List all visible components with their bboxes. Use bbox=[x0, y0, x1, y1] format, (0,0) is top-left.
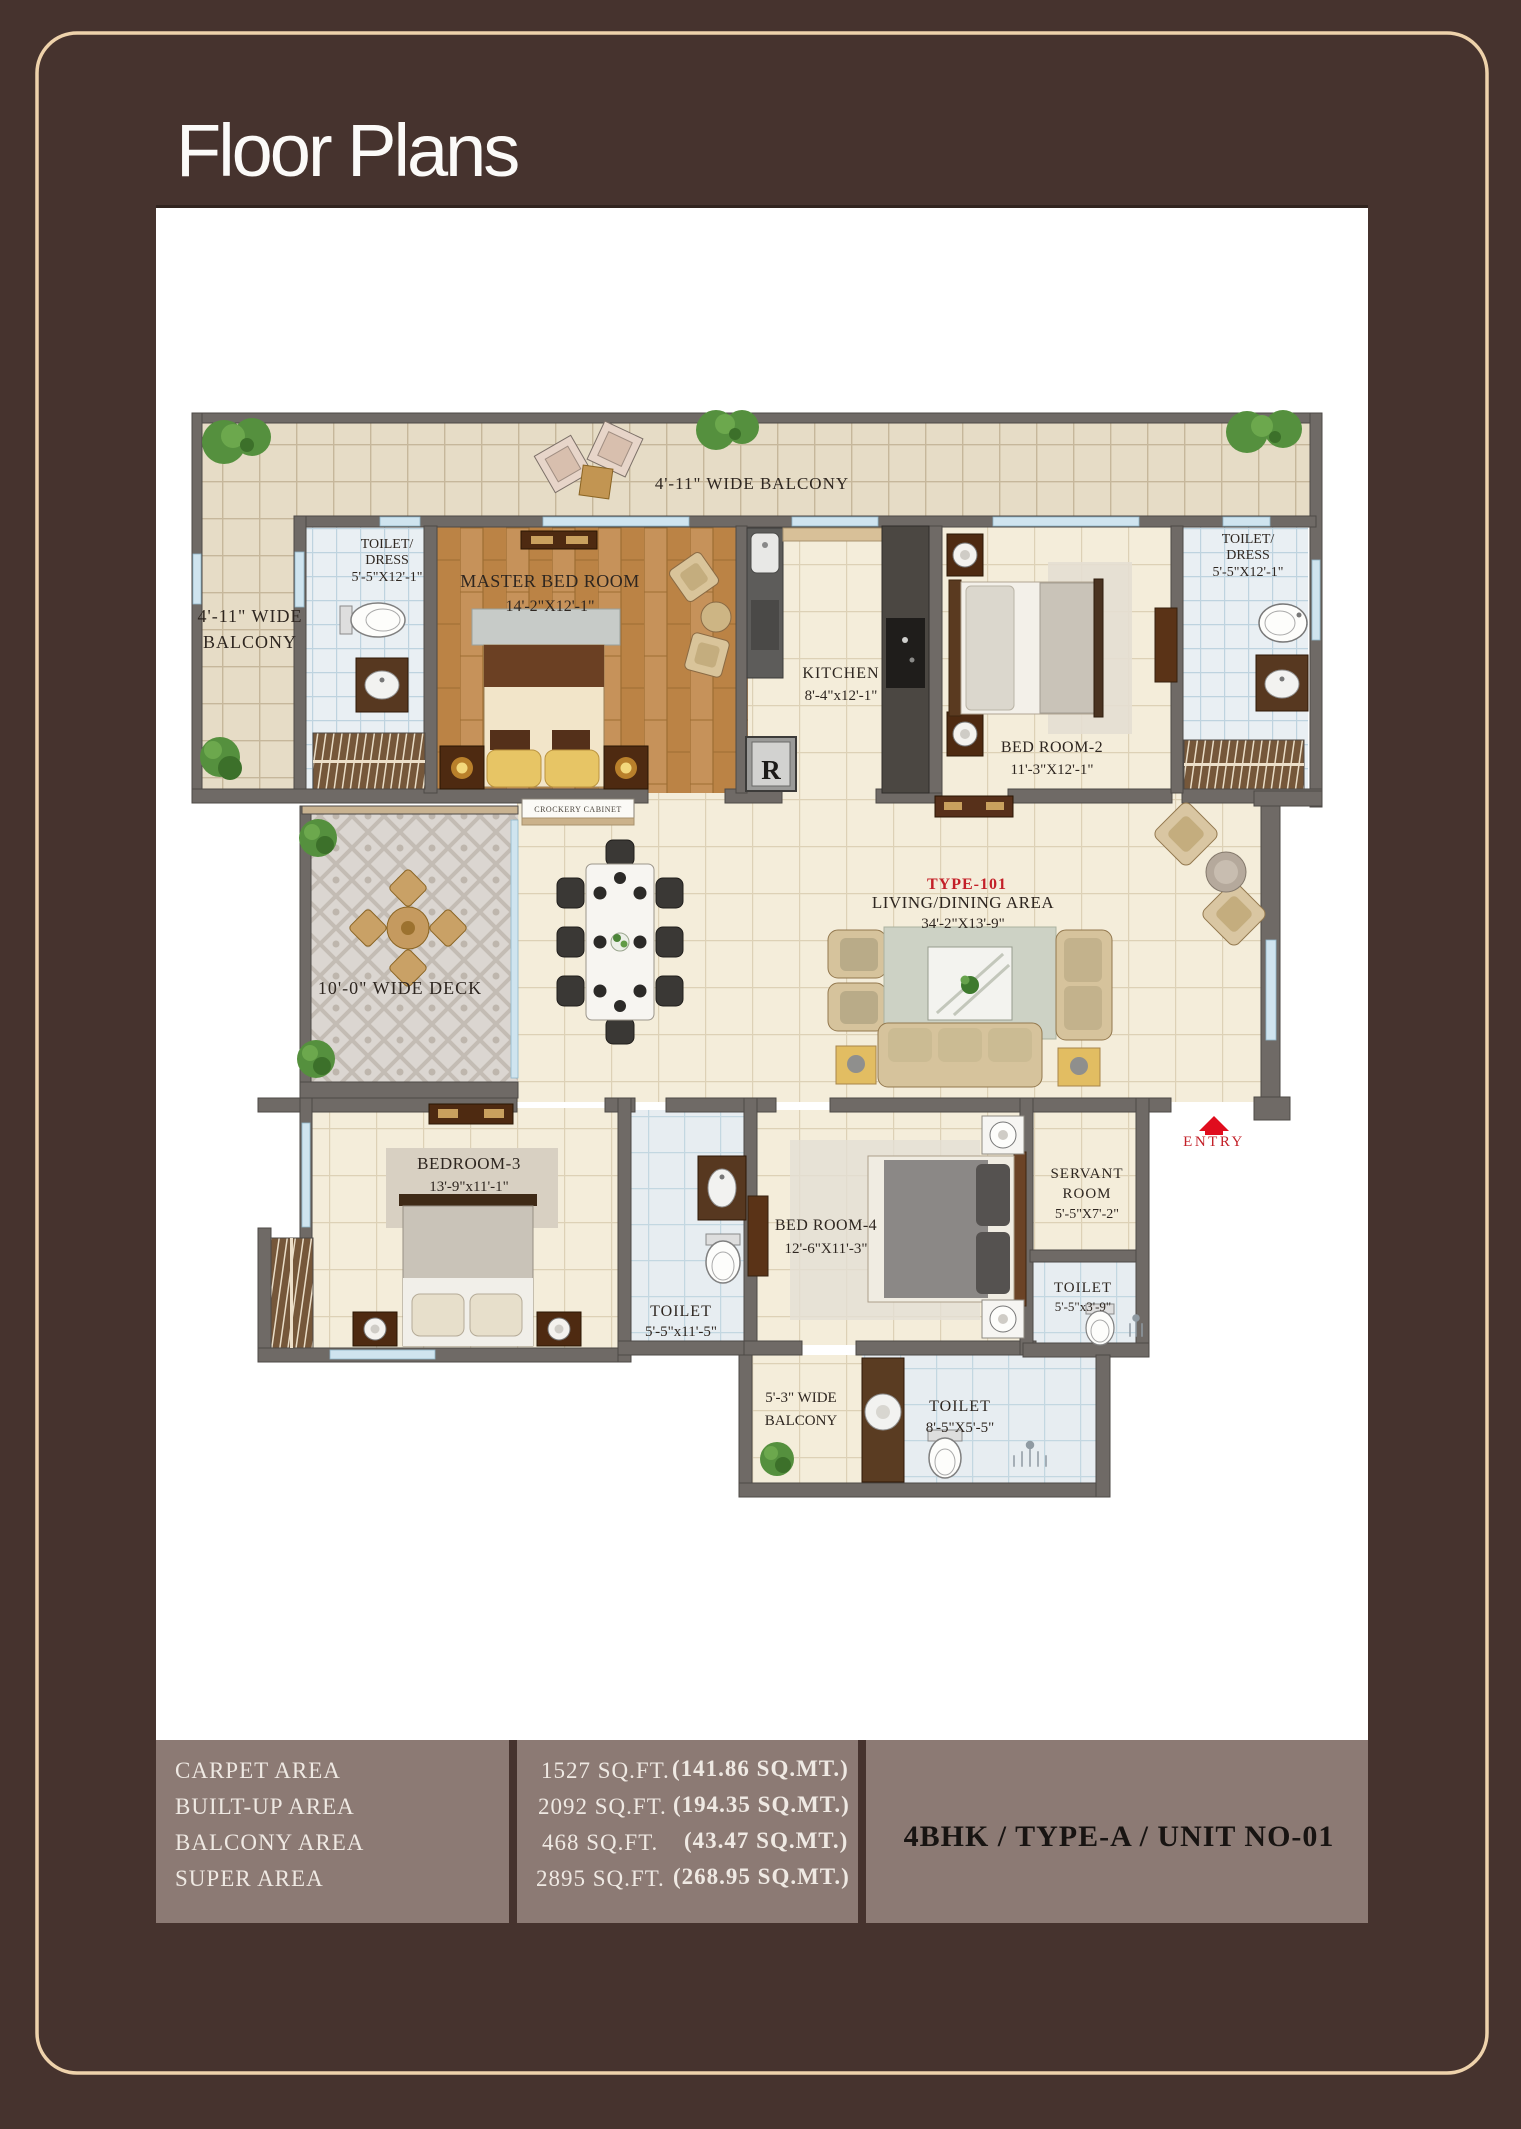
svg-text:5'-5"X7'-2": 5'-5"X7'-2" bbox=[1055, 1207, 1119, 1222]
svg-text:5'-3" WIDE: 5'-3" WIDE bbox=[765, 1390, 836, 1406]
svg-text:8'-4"x12'-1": 8'-4"x12'-1" bbox=[805, 688, 878, 704]
svg-text:CARPET AREA: CARPET AREA bbox=[175, 1758, 341, 1783]
svg-text:34'-2"X13'-9": 34'-2"X13'-9" bbox=[921, 916, 1004, 932]
svg-text:BED ROOM-4: BED ROOM-4 bbox=[775, 1217, 877, 1234]
svg-text:1527 SQ.FT.: 1527 SQ.FT. bbox=[541, 1758, 670, 1783]
svg-text:Floor Plans: Floor Plans bbox=[176, 109, 518, 192]
svg-text:(141.86 SQ.MT.): (141.86 SQ.MT.) bbox=[672, 1756, 849, 1781]
svg-text:8'-5"X5'-5": 8'-5"X5'-5" bbox=[926, 1420, 994, 1436]
svg-text:ROOM: ROOM bbox=[1062, 1186, 1111, 1202]
svg-text:4'-11" WIDE BALCONY: 4'-11" WIDE BALCONY bbox=[655, 474, 849, 493]
svg-text:(194.35 SQ.MT.): (194.35 SQ.MT.) bbox=[673, 1792, 850, 1817]
svg-text:TOILET/: TOILET/ bbox=[361, 537, 414, 552]
svg-text:MASTER BED ROOM: MASTER BED ROOM bbox=[460, 571, 640, 591]
svg-text:(268.95 SQ.MT.): (268.95 SQ.MT.) bbox=[673, 1864, 850, 1889]
svg-text:4BHK / TYPE-A / UNIT NO-01: 4BHK / TYPE-A / UNIT NO-01 bbox=[904, 1820, 1335, 1853]
svg-text:TOILET/: TOILET/ bbox=[1222, 532, 1275, 547]
svg-text:5'-5"X12'-1": 5'-5"X12'-1" bbox=[1213, 565, 1284, 580]
svg-text:KITCHEN: KITCHEN bbox=[802, 665, 879, 682]
svg-text:BALCONY: BALCONY bbox=[203, 632, 297, 652]
svg-text:10'-0" WIDE DECK: 10'-0" WIDE DECK bbox=[318, 978, 482, 998]
svg-text:11'-3"X12'-1": 11'-3"X12'-1" bbox=[1011, 762, 1094, 778]
svg-text:R: R bbox=[761, 755, 781, 785]
svg-text:BALCONY: BALCONY bbox=[765, 1413, 838, 1429]
svg-text:TOILET: TOILET bbox=[929, 1398, 991, 1415]
svg-text:2092 SQ.FT.: 2092 SQ.FT. bbox=[538, 1794, 667, 1819]
svg-text:5'-5"x11'-5": 5'-5"x11'-5" bbox=[645, 1324, 717, 1340]
svg-text:TYPE-101: TYPE-101 bbox=[927, 876, 1007, 893]
svg-text:468 SQ.FT.: 468 SQ.FT. bbox=[542, 1830, 658, 1855]
svg-text:BED ROOM-2: BED ROOM-2 bbox=[1001, 739, 1103, 756]
svg-text:LIVING/DINING AREA: LIVING/DINING AREA bbox=[872, 893, 1055, 912]
svg-text:SERVANT: SERVANT bbox=[1050, 1166, 1123, 1182]
svg-text:TOILET: TOILET bbox=[650, 1303, 712, 1320]
svg-text:14'-2"X12'-1": 14'-2"X12'-1" bbox=[505, 598, 594, 615]
svg-text:TOILET: TOILET bbox=[1054, 1280, 1112, 1296]
svg-text:12'-6"X11'-3": 12'-6"X11'-3" bbox=[785, 1241, 868, 1257]
svg-text:2895 SQ.FT.: 2895 SQ.FT. bbox=[536, 1866, 665, 1891]
svg-text:DRESS: DRESS bbox=[1226, 548, 1270, 563]
svg-text:4'-11" WIDE: 4'-11" WIDE bbox=[197, 606, 302, 626]
svg-text:CROCKERY CABINET: CROCKERY CABINET bbox=[534, 805, 622, 814]
svg-text:DRESS: DRESS bbox=[365, 553, 409, 568]
svg-text:BEDROOM-3: BEDROOM-3 bbox=[417, 1154, 521, 1173]
svg-text:SUPER AREA: SUPER AREA bbox=[175, 1866, 324, 1891]
svg-text:ENTRY: ENTRY bbox=[1183, 1134, 1245, 1150]
svg-text:(43.47 SQ.MT.): (43.47 SQ.MT.) bbox=[684, 1828, 848, 1853]
svg-text:BALCONY AREA: BALCONY AREA bbox=[175, 1830, 364, 1855]
svg-text:5'-5"x3'-9": 5'-5"x3'-9" bbox=[1055, 1299, 1111, 1314]
svg-text:13'-9"x11'-1": 13'-9"x11'-1" bbox=[429, 1179, 509, 1195]
svg-text:5'-5"X12'-1": 5'-5"X12'-1" bbox=[352, 570, 423, 585]
svg-text:BUILT-UP AREA: BUILT-UP AREA bbox=[175, 1794, 355, 1819]
